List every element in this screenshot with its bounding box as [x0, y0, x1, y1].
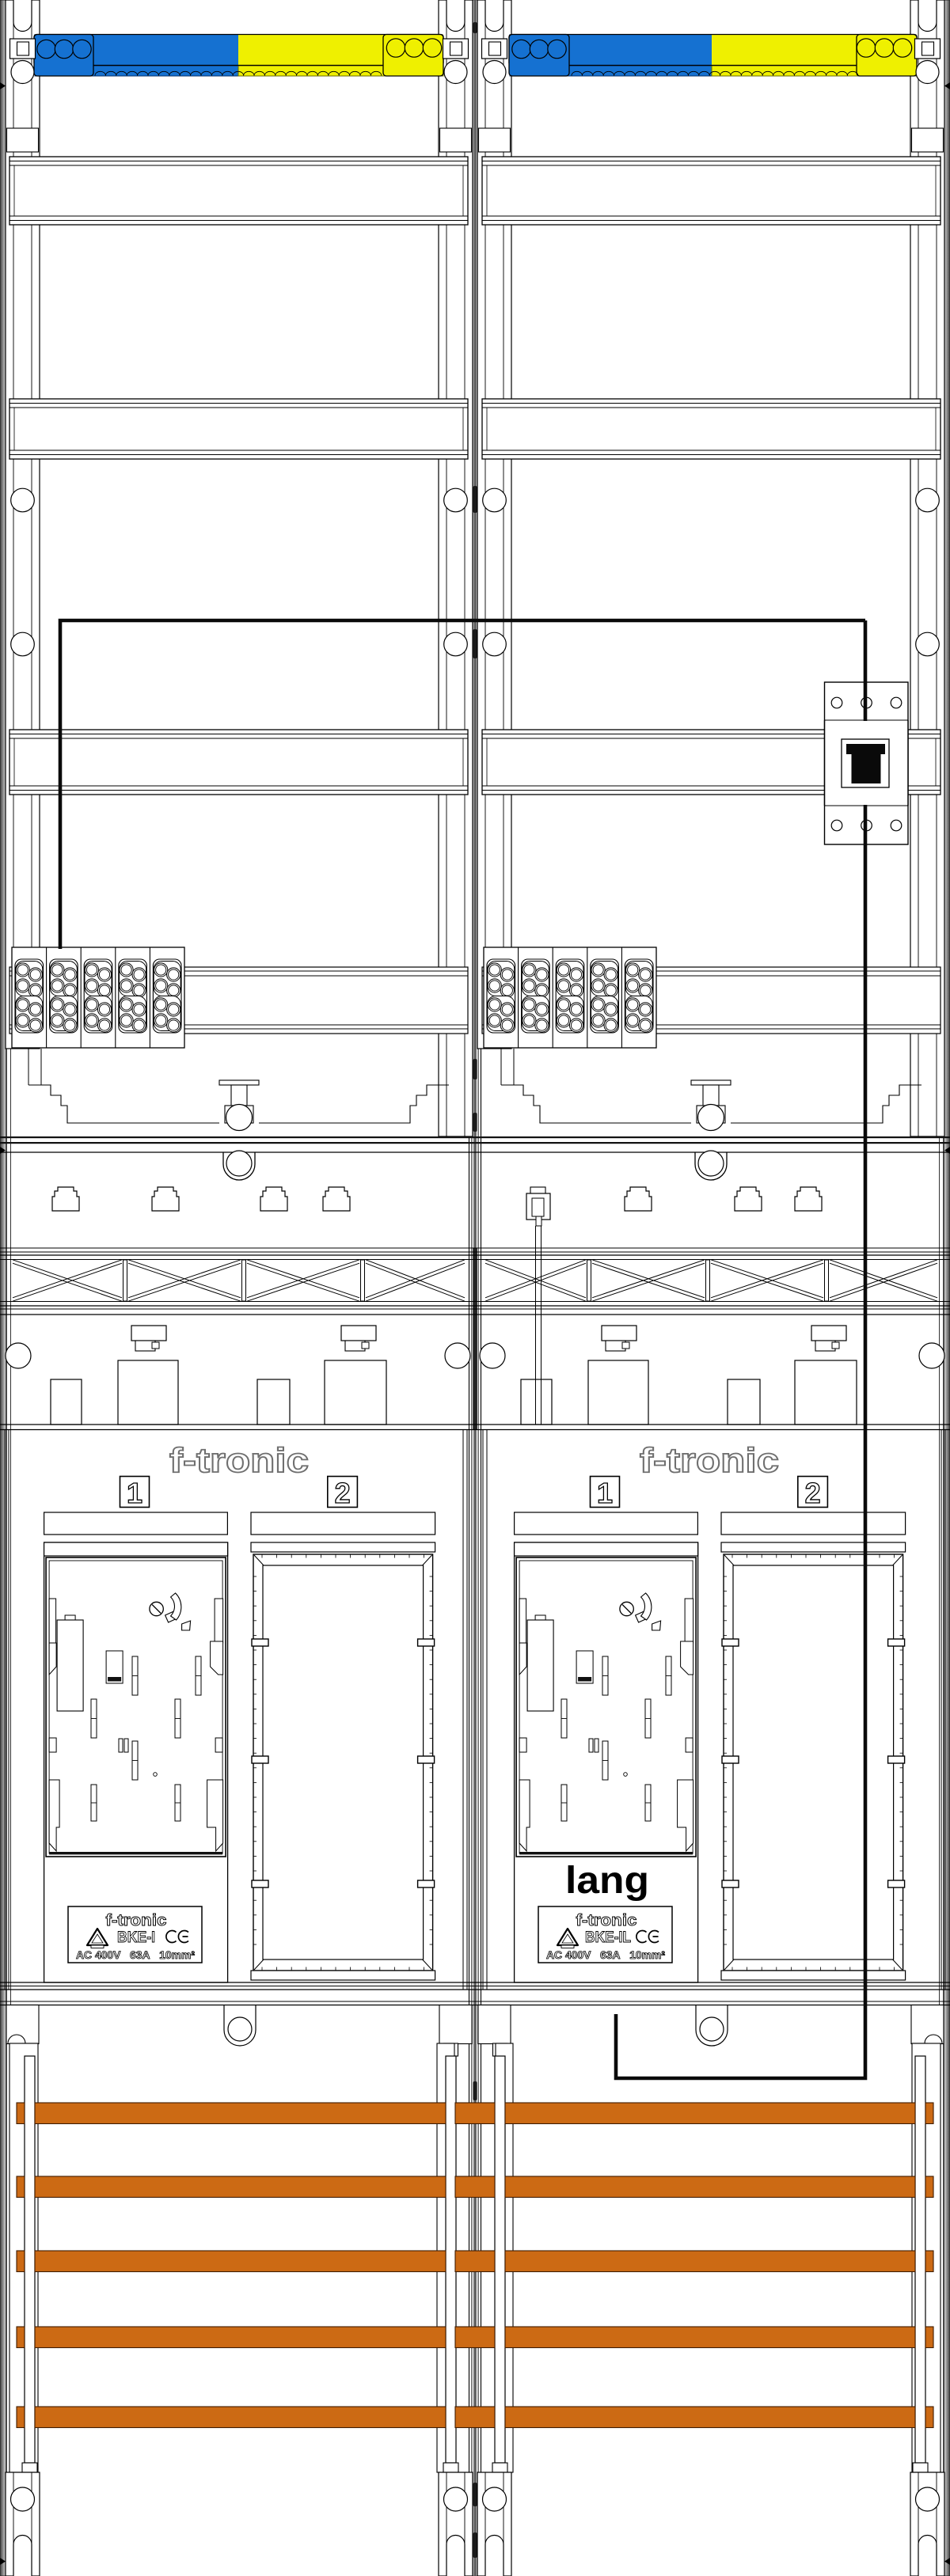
svg-text:lang: lang: [565, 1860, 649, 1902]
svg-text:AC 400V 63A 10mm²: AC 400V 63A 10mm²: [546, 1949, 666, 1961]
svg-text:1: 1: [597, 1477, 613, 1509]
svg-text:BKE-I: BKE-I: [117, 1929, 155, 1946]
svg-text:f-tronic: f-tronic: [576, 1912, 637, 1929]
svg-text:AC 400V 63A 10mm²: AC 400V 63A 10mm²: [76, 1949, 196, 1961]
svg-text:1: 1: [127, 1477, 142, 1509]
svg-text:2: 2: [805, 1477, 821, 1509]
svg-text:f-tronic: f-tronic: [169, 1441, 309, 1480]
svg-text:f-tronic: f-tronic: [106, 1912, 167, 1929]
svg-text:2: 2: [335, 1477, 351, 1509]
svg-text:f-tronic: f-tronic: [640, 1441, 779, 1480]
svg-text:BKE-IL: BKE-IL: [585, 1929, 631, 1946]
